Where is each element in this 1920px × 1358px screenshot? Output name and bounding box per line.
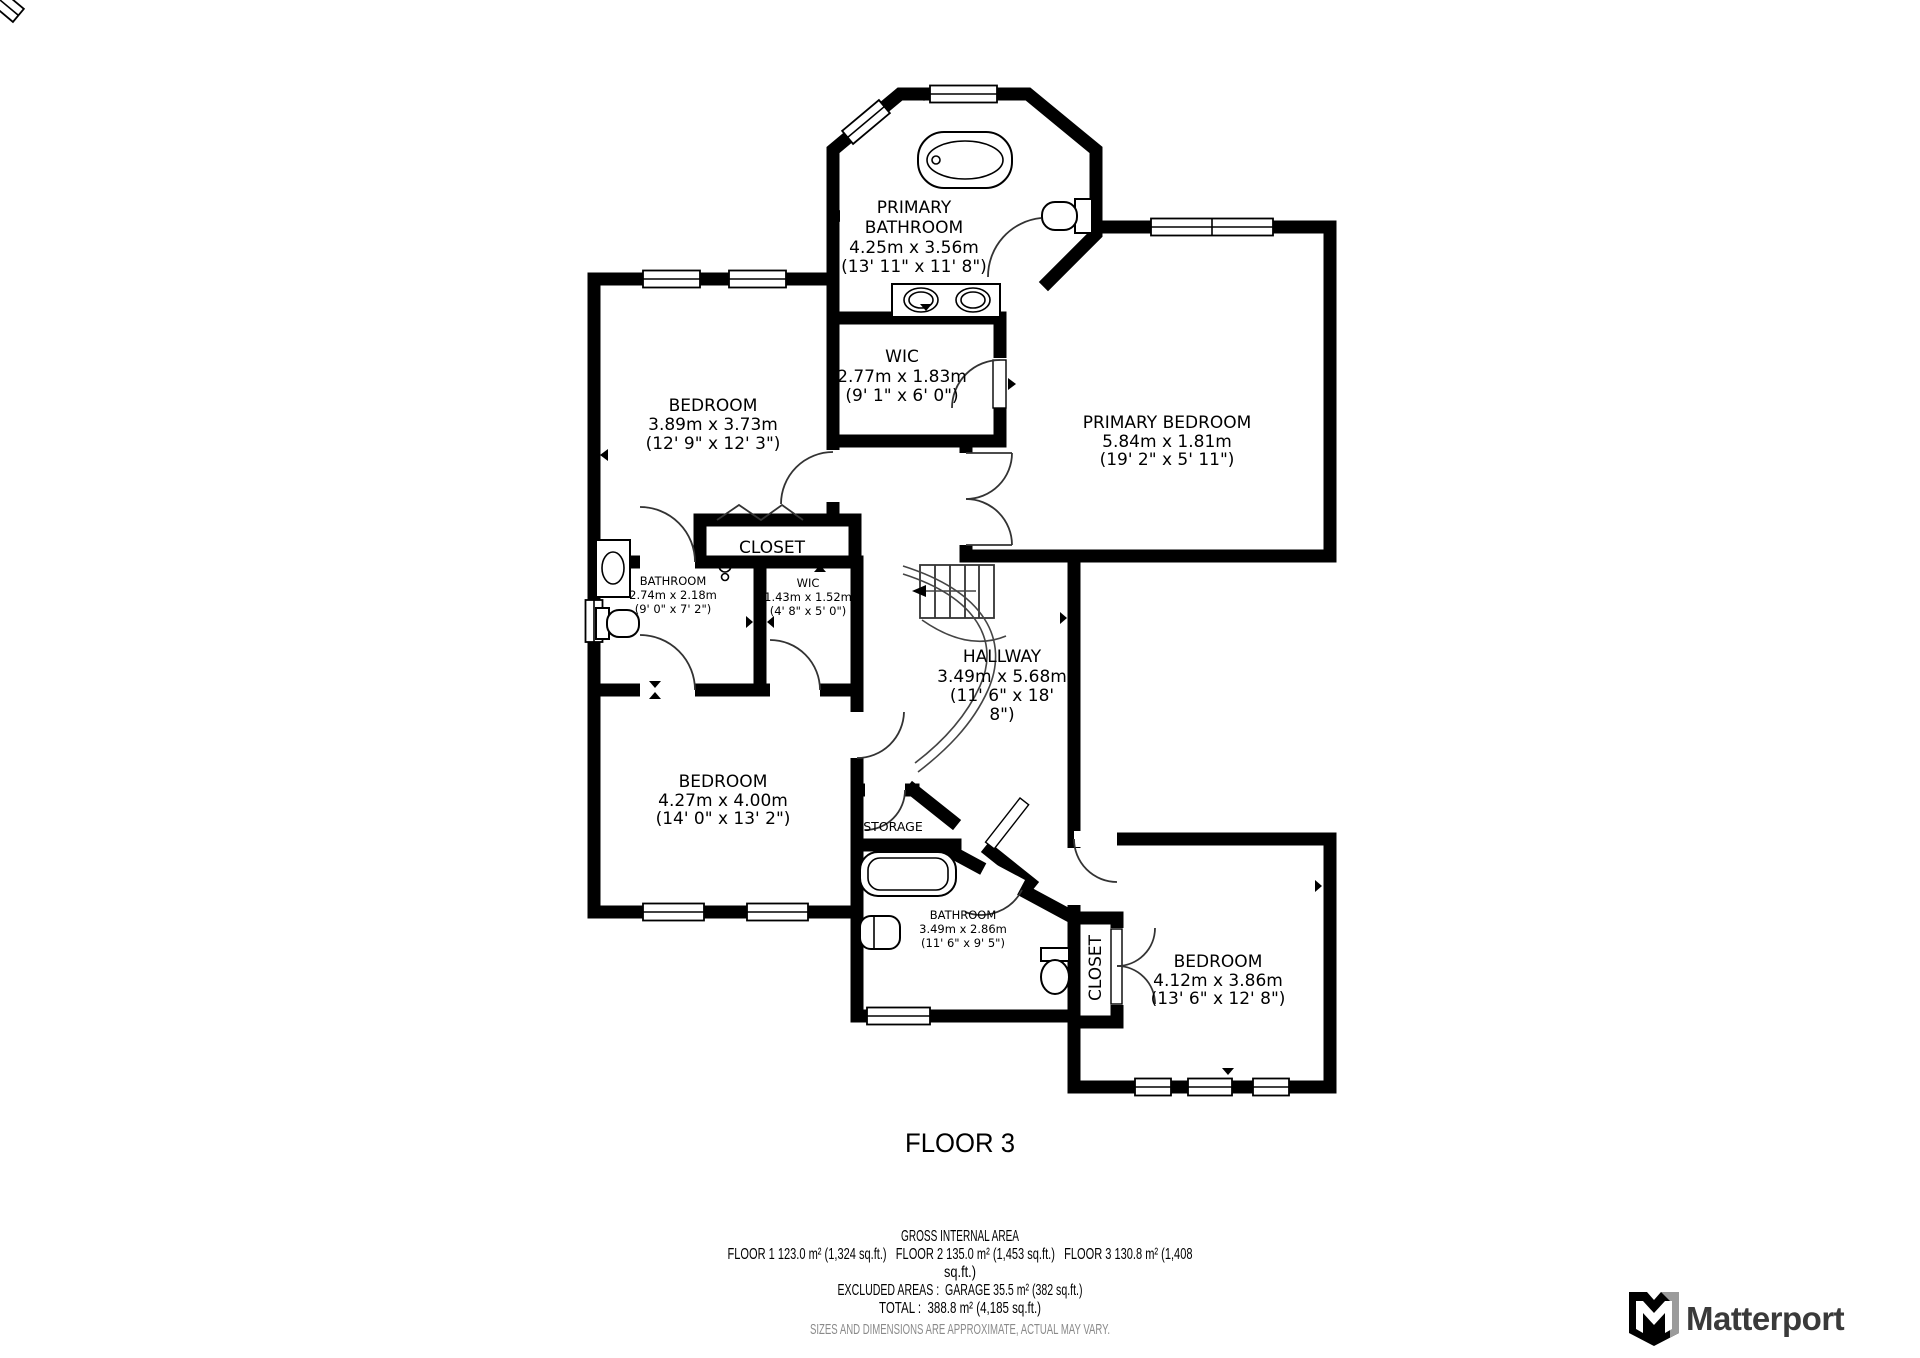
wall-west-and-bay bbox=[594, 94, 1096, 912]
window bbox=[1135, 1079, 1171, 1096]
door-arc-bathroom-small-bottom bbox=[640, 635, 695, 690]
floorplan-page: PRIMARY BATHROOM 4.25m x 3.56m (13' 11" … bbox=[0, 0, 1920, 1358]
room-label-wic-small: WIC 1.43m x 1.52m (4' 8" x 5' 0") bbox=[764, 576, 852, 618]
room-label-bedroom-top-left: BEDROOM 3.89m x 3.73m (12' 9" x 12' 3") bbox=[646, 396, 781, 454]
room-name: WIC bbox=[885, 347, 919, 367]
room-label-closet-bedroom: CLOSET bbox=[1086, 934, 1106, 1001]
window bbox=[643, 904, 704, 921]
window bbox=[0, 0, 24, 22]
stairs-direction-arrow bbox=[912, 585, 926, 597]
room-dim-metric: 4.27m x 4.00m bbox=[658, 791, 788, 811]
door-arc-primary-bathroom bbox=[988, 218, 1041, 277]
floor-title: FLOOR 3 bbox=[905, 1128, 1015, 1158]
room-dim-imperial: 8") bbox=[989, 705, 1014, 725]
sink-bathroom-small bbox=[596, 540, 630, 597]
gap-vestibule-door bbox=[1066, 848, 1082, 905]
room-name: CLOSET bbox=[1086, 934, 1106, 1001]
bathtub-primary bbox=[918, 132, 1012, 188]
window bbox=[643, 271, 700, 288]
room-name: STORAGE bbox=[863, 819, 923, 834]
footer-floor-areas-wrap: sq.ft.) bbox=[944, 1264, 976, 1281]
window bbox=[729, 271, 786, 288]
room-name: HALLWAY bbox=[963, 647, 1042, 667]
gap-bathroom-small-top-door bbox=[640, 554, 695, 570]
marker bbox=[1222, 1068, 1234, 1075]
footer-floor-areas: FLOOR 1 123.0 m² (1,324 sq.ft.) FLOOR 2 … bbox=[728, 1246, 1193, 1263]
room-name: BATHROOM bbox=[640, 574, 707, 588]
room-label-wic-primary: WIC 2.77m x 1.83m (9' 1" x 6' 0") bbox=[837, 347, 967, 406]
room-dim-imperial: (9' 1" x 6' 0") bbox=[845, 386, 958, 406]
room-label-storage: STORAGE bbox=[863, 819, 923, 834]
room-label-bedroom-middle: BEDROOM 4.27m x 4.00m (14' 0" x 13' 2") bbox=[656, 772, 791, 829]
window bbox=[930, 86, 997, 103]
room-dim-imperial: (9' 0" x 7' 2") bbox=[635, 602, 712, 616]
marker bbox=[600, 449, 608, 461]
matterport-m-icon bbox=[1629, 1292, 1679, 1346]
room-name: BATHROOM bbox=[865, 218, 963, 238]
gap-wic-small-door bbox=[770, 682, 820, 698]
room-name: BATHROOM bbox=[930, 908, 997, 922]
room-dim-imperial: (11' 6" x 9' 5") bbox=[921, 936, 1005, 950]
gap-bathroom-small-bottom-door bbox=[640, 682, 695, 698]
door-arc-bedroom-tl bbox=[781, 452, 833, 504]
room-dim-metric: 2.74m x 2.18m bbox=[629, 588, 717, 602]
toilet-bathroom-small bbox=[596, 608, 639, 639]
marker bbox=[1315, 880, 1322, 892]
toilet-bathroom-bottom bbox=[1041, 948, 1069, 994]
room-name: WIC bbox=[797, 576, 820, 590]
room-name: BEDROOM bbox=[669, 396, 758, 416]
gap-middle-bedroom-door bbox=[849, 712, 865, 758]
gap-storage-door bbox=[865, 782, 905, 798]
room-dim-metric: 1.43m x 1.52m bbox=[764, 590, 852, 604]
wall-primary-bedroom bbox=[966, 227, 1330, 556]
room-dim-metric: 4.25m x 3.56m bbox=[849, 238, 979, 258]
room-dim-imperial: (14' 0" x 13' 2") bbox=[656, 809, 791, 829]
room-label-bedroom-bottom-right: BEDROOM 4.12m x 3.86m (13' 6" x 12' 8") bbox=[1151, 952, 1286, 1009]
room-name: BEDROOM bbox=[679, 772, 768, 792]
room-label-bathroom-small: BATHROOM 2.74m x 2.18m (9' 0" x 7' 2") bbox=[629, 574, 717, 616]
room-dim-imperial: (19' 2" x 5' 11") bbox=[1100, 450, 1235, 470]
logo-wordmark: Matterport bbox=[1686, 1300, 1845, 1337]
room-label-hallway: HALLWAY 3.49m x 5.68m (11' 6" x 18' 8") bbox=[937, 647, 1067, 725]
window bbox=[842, 100, 890, 144]
footer-excluded-areas: EXCLUDED AREAS : GARAGE 35.5 m² (382 sq.… bbox=[838, 1282, 1083, 1299]
room-name: CLOSET bbox=[739, 538, 806, 558]
gap-bedroom-tl-door bbox=[826, 450, 841, 502]
marker bbox=[746, 616, 753, 628]
footer-total-area: TOTAL : 388.8 m² (4,185 sq.ft.) bbox=[879, 1300, 1041, 1317]
room-dim-metric: 3.89m x 3.73m bbox=[648, 415, 778, 435]
room-dim-imperial: (13' 11" x 11' 8") bbox=[841, 257, 987, 277]
room-label-primary-bedroom: PRIMARY BEDROOM 5.84m x 1.81m (19' 2" x … bbox=[1083, 413, 1252, 470]
room-dim-metric: 4.12m x 3.86m bbox=[1153, 971, 1283, 991]
door-arc-bathroom-small-top bbox=[640, 507, 695, 562]
room-name: PRIMARY bbox=[877, 198, 952, 218]
window bbox=[1253, 1079, 1289, 1096]
room-dim-imperial: (4' 8" x 5' 0") bbox=[770, 604, 847, 618]
footer-disclaimer: SIZES AND DIMENSIONS ARE APPROXIMATE, AC… bbox=[810, 1321, 1110, 1338]
wall-closet-main-row bbox=[594, 520, 857, 562]
marker bbox=[1060, 612, 1067, 624]
bathtub-bottom bbox=[860, 852, 956, 896]
window bbox=[1151, 219, 1273, 236]
window bbox=[747, 904, 808, 921]
floorplan-svg: PRIMARY BATHROOM 4.25m x 3.56m (13' 11" … bbox=[0, 0, 1920, 1358]
room-dim-metric: 3.49m x 2.86m bbox=[919, 922, 1007, 936]
door-leaf-bedroom-br bbox=[986, 798, 1029, 849]
gap-bedroom-br-door bbox=[1074, 831, 1117, 847]
room-dim-metric: 2.77m x 1.83m bbox=[837, 367, 967, 387]
room-label-bathroom-bottom: BATHROOM 3.49m x 2.86m (11' 6" x 9' 5") bbox=[919, 908, 1007, 950]
window bbox=[1188, 1079, 1232, 1096]
door-leaf-wic-primary bbox=[993, 360, 1006, 408]
room-dim-metric: 5.84m x 1.81m bbox=[1102, 432, 1232, 452]
room-dim-imperial: (12' 9" x 12' 3") bbox=[646, 434, 781, 454]
marker bbox=[1008, 378, 1016, 390]
footer-gross-area-heading: GROSS INTERNAL AREA bbox=[901, 1228, 1019, 1245]
matterport-logo: Matterport bbox=[1629, 1292, 1845, 1346]
room-label-primary-bathroom: PRIMARY BATHROOM 4.25m x 3.56m (13' 11" … bbox=[841, 198, 987, 277]
vanity-double-sink bbox=[892, 284, 1000, 317]
sink-bathroom-bottom bbox=[860, 916, 900, 949]
room-dim-imperial: (13' 6" x 12' 8") bbox=[1151, 989, 1286, 1009]
room-label-closet-main: CLOSET bbox=[739, 538, 806, 558]
toilet-primary-bathroom bbox=[1042, 199, 1092, 233]
room-name: BEDROOM bbox=[1174, 952, 1263, 972]
room-name: PRIMARY BEDROOM bbox=[1083, 413, 1252, 433]
footer: GROSS INTERNAL AREA FLOOR 1 123.0 m² (1,… bbox=[728, 1228, 1193, 1338]
room-dim-imperial: (11' 6" x 18' bbox=[950, 686, 1054, 706]
room-dim-metric: 3.49m x 5.68m bbox=[937, 667, 1067, 687]
window bbox=[867, 1008, 930, 1025]
